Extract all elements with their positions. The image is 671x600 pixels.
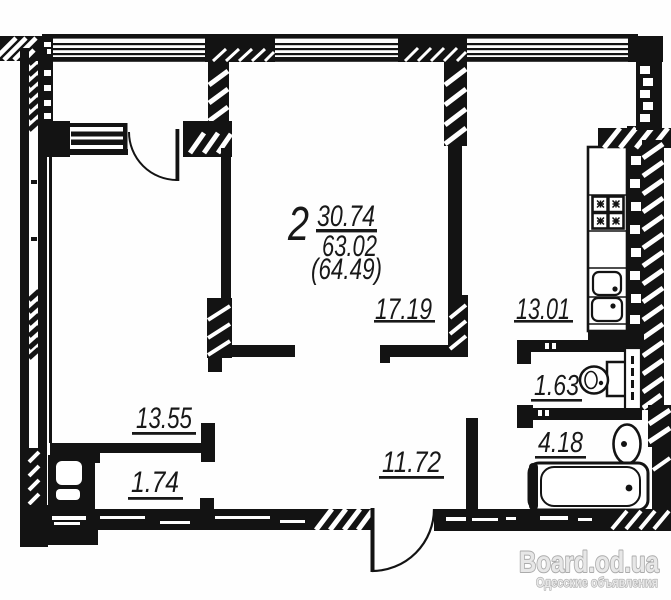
svg-text:Одесские объявления: Одесские объявления (536, 574, 658, 590)
svg-text:30.74: 30.74 (317, 200, 375, 233)
svg-text:13.55: 13.55 (136, 402, 192, 435)
svg-text:4.18: 4.18 (538, 427, 583, 459)
svg-text:2: 2 (287, 198, 309, 251)
svg-text:11.72: 11.72 (382, 446, 441, 479)
svg-text:1.74: 1.74 (131, 466, 179, 499)
svg-text:1.63: 1.63 (534, 370, 579, 402)
svg-text:(64.49): (64.49) (311, 253, 382, 286)
